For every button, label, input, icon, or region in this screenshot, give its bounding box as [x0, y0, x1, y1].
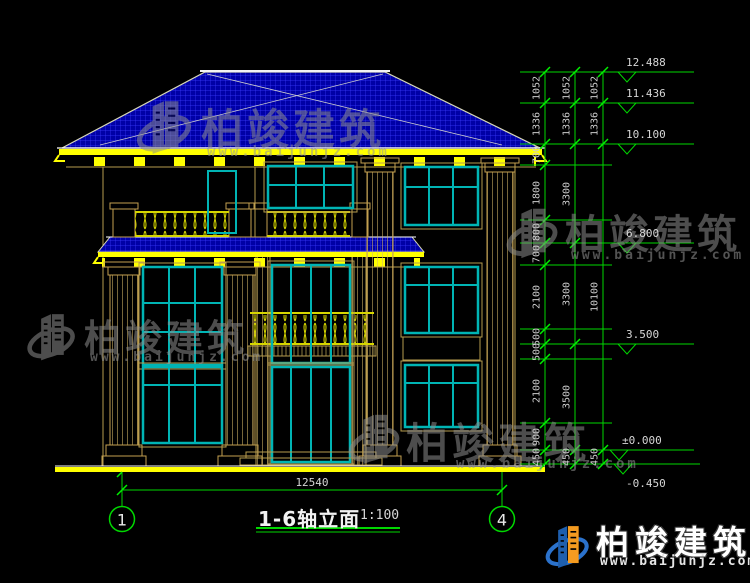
drawing-title: 1-6轴立面 — [258, 503, 360, 532]
main-eave — [55, 149, 546, 167]
elevation-label: 3.500 — [626, 328, 659, 341]
footer-logo-url: www.baijunjz.com — [600, 554, 750, 569]
axis-marker-1: 1 — [117, 511, 127, 530]
drawing-scale: 1:100 — [360, 508, 399, 523]
dim-value: 1336 — [590, 112, 601, 136]
footer-logo: 柏竣建筑 www.baijunjz.com — [540, 508, 750, 583]
dim-value: 3300 — [562, 282, 573, 306]
dim-value: 3500 — [562, 385, 573, 409]
dim-value: 700 — [532, 146, 543, 164]
elevation-label: 12.488 — [626, 56, 666, 69]
dim-value: 1336 — [562, 112, 573, 136]
dim-value: 700 — [532, 245, 543, 263]
axis-marker-4: 4 — [497, 511, 507, 530]
dim-value: 900 — [532, 428, 543, 446]
dim-value: 450 — [562, 448, 573, 466]
overall-dimension: 12540 — [295, 476, 328, 489]
dim-value: 1336 — [532, 112, 543, 136]
dim-value: 800 — [532, 223, 543, 241]
dim-value: 3300 — [562, 182, 573, 206]
main-roof — [57, 71, 545, 148]
windows — [139, 162, 482, 464]
elevation-label: -0.450 — [626, 477, 666, 490]
dim-value: 450 — [532, 448, 543, 466]
dim-value: 2100 — [532, 379, 543, 403]
elevation-label: 11.436 — [626, 87, 666, 100]
dim-value: 1052 — [532, 76, 543, 100]
dim-value: 500 — [532, 343, 543, 361]
dim-value: 2100 — [532, 285, 543, 309]
dim-value: 450 — [590, 448, 601, 466]
dim-value: 1052 — [562, 76, 573, 100]
elevation-label: ±0.000 — [622, 434, 662, 447]
elevation-label: 10.100 — [626, 128, 666, 141]
dim-value: 1052 — [590, 76, 601, 100]
dim-value: 1800 — [532, 181, 543, 205]
elevation-label: 6.800 — [626, 227, 659, 240]
footer-logo-icon — [545, 513, 591, 577]
cad-elevation-canvas: 柏竣建筑 www.baijunjz.com 柏竣建筑 www.baijunjz.… — [0, 0, 750, 583]
dim-value: 10100 — [590, 282, 601, 312]
